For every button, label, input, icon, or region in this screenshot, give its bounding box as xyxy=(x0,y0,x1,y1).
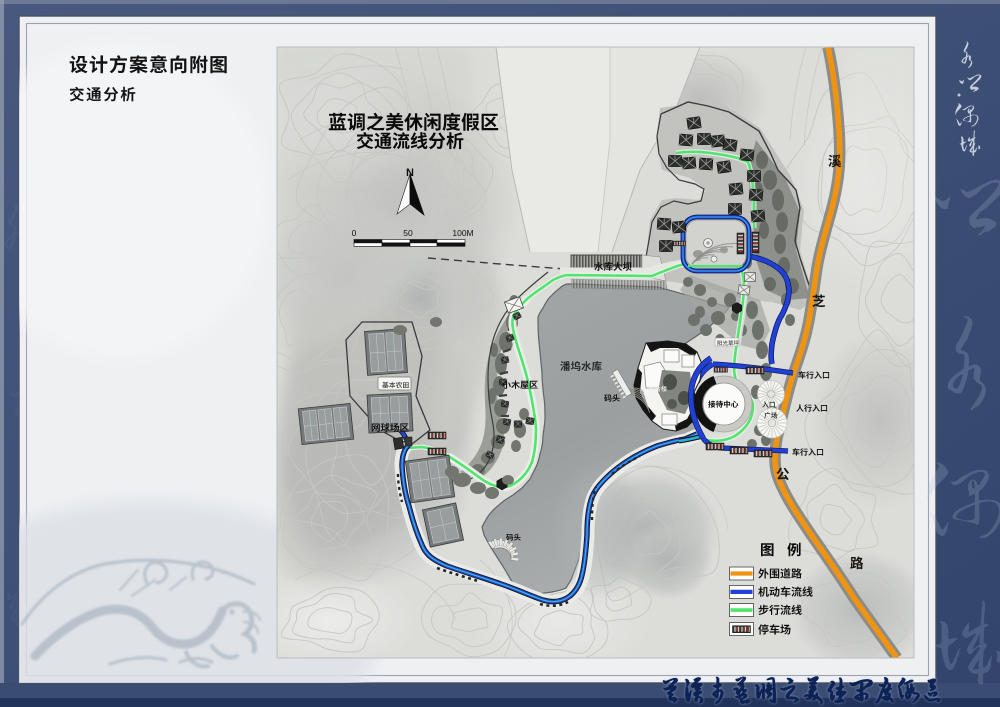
svg-text:N: N xyxy=(406,167,414,179)
svg-text:50: 50 xyxy=(403,228,413,238)
svg-text:100M: 100M xyxy=(452,228,473,238)
svg-text:0: 0 xyxy=(352,228,357,238)
